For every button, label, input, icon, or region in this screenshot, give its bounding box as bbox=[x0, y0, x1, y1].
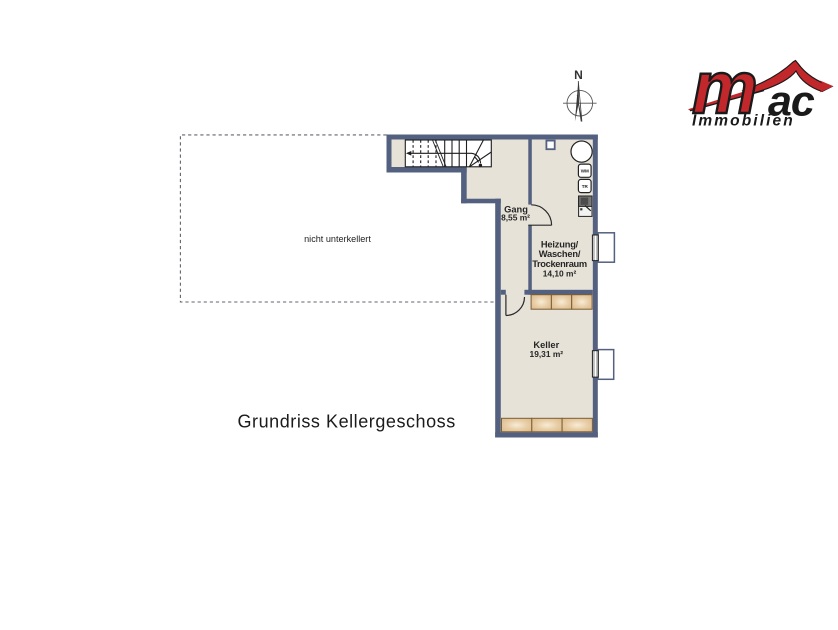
svg-text:19,31 m²: 19,31 m² bbox=[530, 349, 564, 359]
svg-text:nicht unterkellert: nicht unterkellert bbox=[304, 234, 371, 244]
svg-text:8,55 m²: 8,55 m² bbox=[501, 213, 530, 223]
svg-text:Immobilien: Immobilien bbox=[692, 113, 795, 130]
svg-text:Waschen/: Waschen/ bbox=[539, 249, 581, 259]
svg-text:Heizung/: Heizung/ bbox=[541, 239, 579, 249]
svg-text:N: N bbox=[574, 68, 583, 82]
svg-text:WM: WM bbox=[581, 169, 589, 174]
svg-text:14,10 m²: 14,10 m² bbox=[543, 268, 577, 278]
svg-text:TR: TR bbox=[582, 184, 589, 189]
svg-text:Grundriss Kellergeschoss: Grundriss Kellergeschoss bbox=[238, 411, 456, 431]
